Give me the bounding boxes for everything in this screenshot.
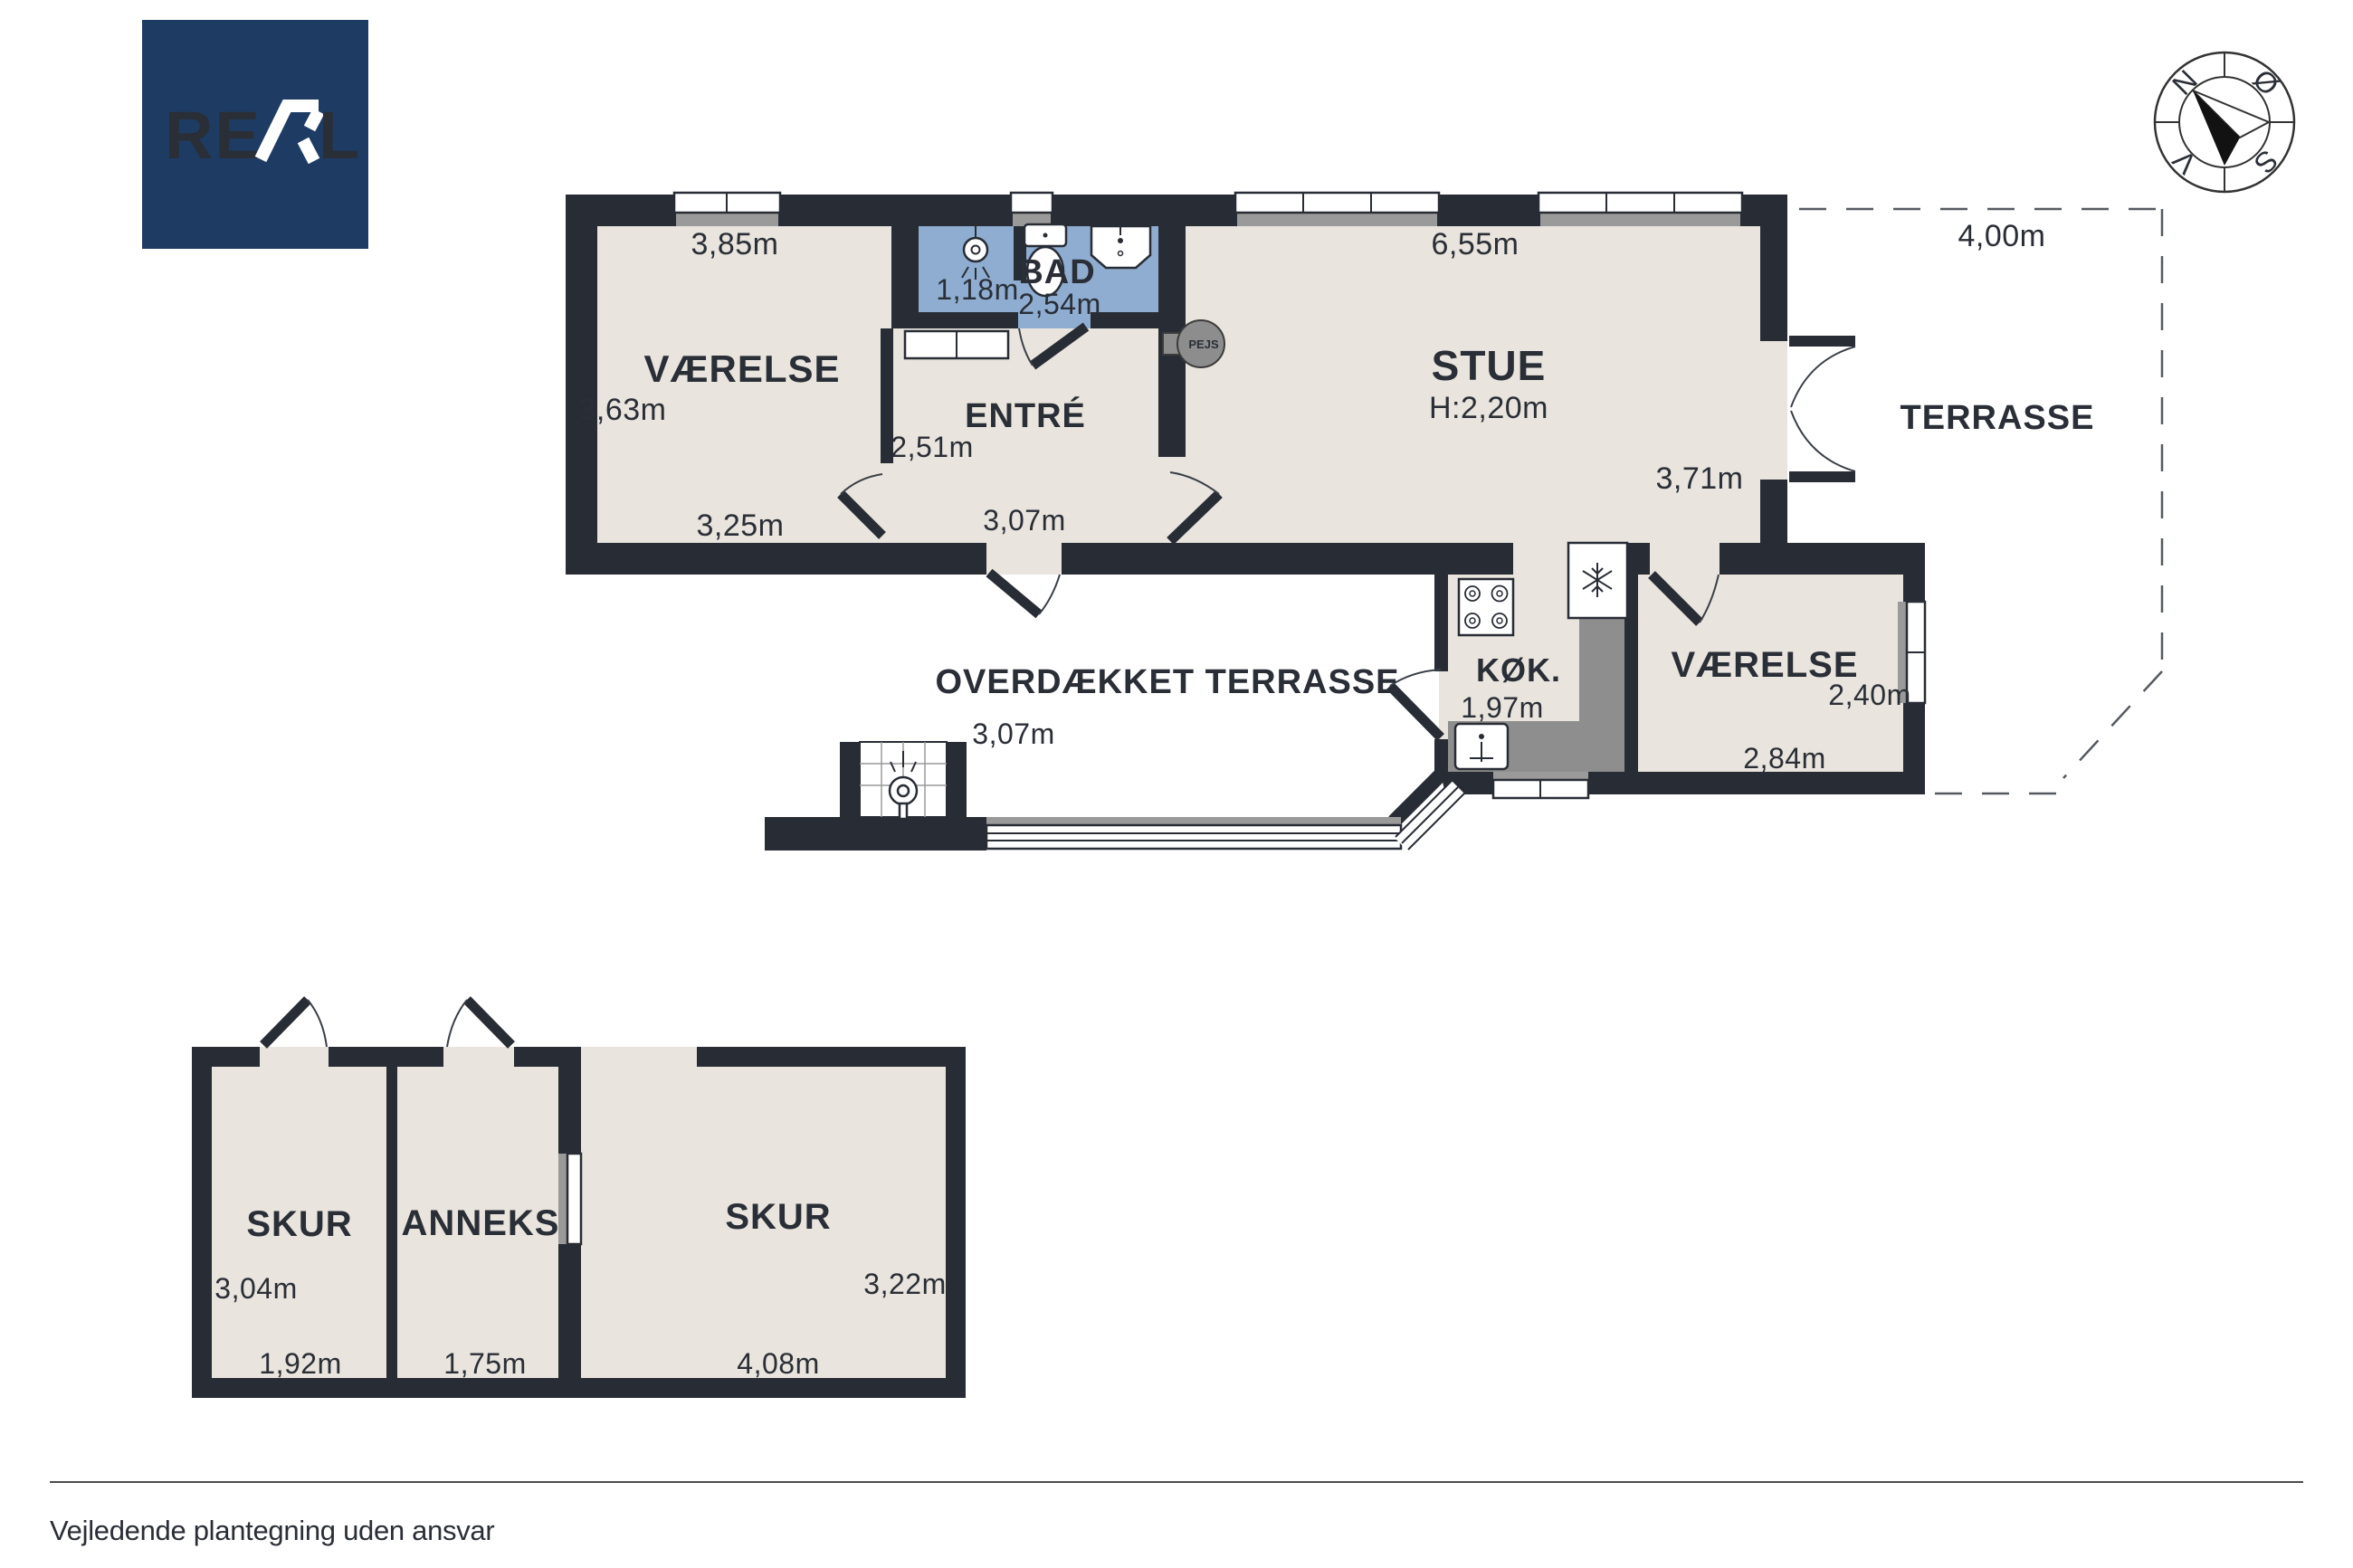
label-vaerelse1: VÆRELSE xyxy=(643,347,840,390)
floorplan-page: RE L N Ø S V xyxy=(0,0,2353,1568)
window-stue-right xyxy=(1538,193,1742,226)
window-bad xyxy=(1011,193,1053,226)
door-entre-terrace xyxy=(989,573,1060,614)
label-anneks: ANNEKS xyxy=(402,1203,560,1243)
vaerelse2-door-threshold xyxy=(1650,543,1719,575)
window-stue-left xyxy=(1235,193,1439,226)
door-skur1 xyxy=(263,1000,327,1047)
window-vaerelse1 xyxy=(674,193,780,226)
meas-skur1-bottom: 1,92m xyxy=(259,1347,341,1380)
meas-vaerelse2-right: 2,40m xyxy=(1828,679,1910,711)
label-skur2: SKUR xyxy=(725,1197,831,1237)
footer-disclaimer: Vejledende plantegning uden ansvar xyxy=(50,1515,494,1546)
bad-sink-icon xyxy=(1091,226,1150,268)
meas-stue-top: 6,55m xyxy=(1432,227,1519,261)
outdoor-shower-icon xyxy=(860,742,947,819)
label-bad: BAD xyxy=(1018,253,1095,291)
meas-skur2-right: 3,22m xyxy=(863,1268,946,1300)
meas-skur1-left: 3,04m xyxy=(214,1272,297,1305)
anneks-door-threshold xyxy=(443,1047,514,1067)
footer: Vejledende plantegning uden ansvar xyxy=(50,1482,2303,1546)
compass-label-v: V xyxy=(2166,143,2203,180)
meas-vaerelse1-bottom: 3,25m xyxy=(697,508,785,543)
meas-entre-width: 2,51m xyxy=(891,431,973,463)
koekken-sink-icon xyxy=(1455,724,1508,769)
meas-overdaekket-width: 3,07m xyxy=(972,717,1054,750)
fireplace-label: PEJS xyxy=(1188,337,1219,351)
meas-stue-ceiling: H:2,20m xyxy=(1429,391,1548,425)
floorplan-drawing: RE L N Ø S V xyxy=(0,0,2353,1568)
meas-skur2-bottom: 4,08m xyxy=(737,1347,819,1380)
logo-text-re: RE xyxy=(165,98,262,173)
door-anneks xyxy=(447,1000,511,1047)
label-stue: STUE xyxy=(1432,342,1547,389)
entre-terrace-threshold xyxy=(986,543,1062,575)
main-house: PEJS xyxy=(566,193,2162,851)
meas-bad-length: 2,54m xyxy=(1018,288,1100,320)
meas-vaerelse1-top: 3,85m xyxy=(691,227,779,261)
skur2-opening xyxy=(581,1047,697,1068)
label-overdaekket-terrasse: OVERDÆKKET TERRASSE xyxy=(935,663,1399,701)
logo-text-l: L xyxy=(319,98,359,173)
fridge-icon xyxy=(1568,543,1627,618)
meas-vaerelse1-left: 3,63m xyxy=(579,393,667,427)
skur1-door-threshold xyxy=(260,1047,329,1067)
meas-terrasse-top: 4,00m xyxy=(1958,219,2046,253)
window-koekken xyxy=(1493,772,1588,798)
real-logo: RE L xyxy=(142,20,368,249)
compass-label-e: Ø xyxy=(2246,62,2285,101)
meas-entre-length: 3,07m xyxy=(983,504,1065,537)
compass-icon: N Ø S V xyxy=(2155,52,2294,192)
meas-stue-right: 3,71m xyxy=(1656,461,1744,496)
french-doors-stue-terrasse xyxy=(1789,336,1855,482)
window-anneks-skur2 xyxy=(558,1154,581,1244)
label-skur1: SKUR xyxy=(246,1204,352,1244)
compass-label-s: S xyxy=(2248,144,2285,181)
label-terrasse: TERRASSE xyxy=(1900,399,2095,437)
label-entre: ENTRÉ xyxy=(965,395,1086,435)
meas-vaerelse2-bottom: 2,84m xyxy=(1743,742,1825,774)
stove-icon xyxy=(1459,579,1513,635)
outbuilding: SKUR 3,04m 1,92m ANNEKS 1,75m SKUR 3,22m… xyxy=(192,1000,966,1398)
meas-koekken-width: 1,97m xyxy=(1461,691,1543,724)
label-koekken: KØK. xyxy=(1476,651,1561,689)
meas-anneks-bottom: 1,75m xyxy=(443,1347,526,1380)
closet-entre xyxy=(905,331,1008,358)
meas-bad-width: 1,18m xyxy=(936,273,1018,306)
french-door-threshold xyxy=(1760,341,1787,480)
